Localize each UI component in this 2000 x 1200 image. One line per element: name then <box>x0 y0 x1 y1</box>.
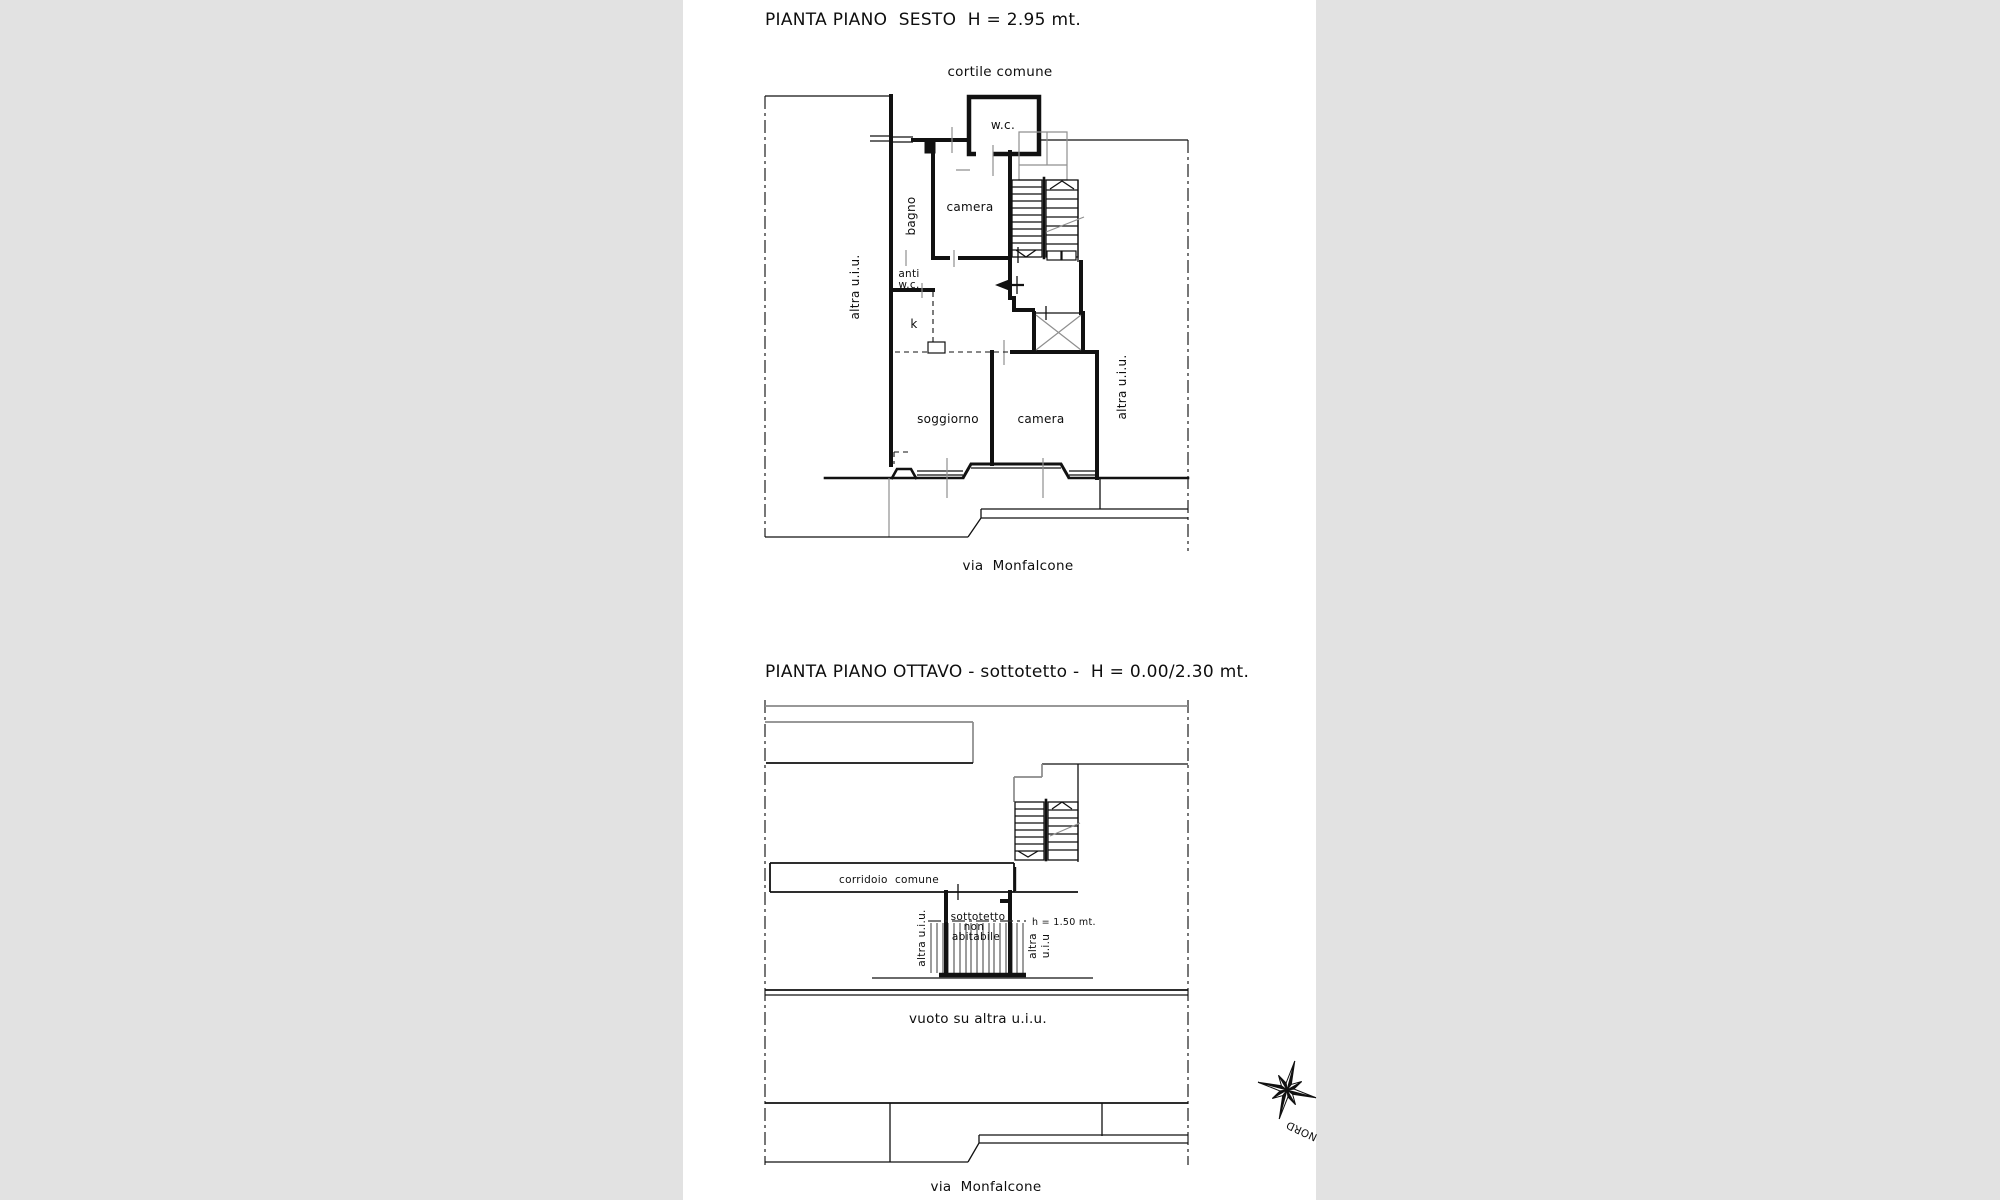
label-soggiorno: soggiorno <box>917 412 979 426</box>
label-sottotetto-3: abitabile <box>952 931 1000 943</box>
plan-sesto-title: PIANTA PIANO SESTO H = 2.95 mt. <box>765 10 1081 30</box>
floor-plan-document: PIANTA PIANO SESTO H = 2.95 mt. cortile … <box>0 0 2000 1200</box>
label-corridoio-comune: corridoio comune <box>839 874 939 886</box>
label-camera-bottom: camera <box>1017 412 1064 426</box>
label-height-note: h = 1.50 mt. <box>1032 917 1096 928</box>
label-wc: w.c. <box>991 118 1015 132</box>
label-anti-wc-2: w.c. <box>898 279 919 291</box>
label-via-monfalcone-1: via Monfalcone <box>963 558 1074 574</box>
label-cortile-comune: cortile comune <box>947 64 1052 80</box>
label-altra-uiu-right: altra u.i.u. <box>1115 354 1129 419</box>
label-via-monfalcone-2: via Monfalcone <box>931 1179 1042 1195</box>
label-altra-right-1: altra <box>1027 933 1039 959</box>
label-altra-right-2: u.i.u <box>1040 934 1052 958</box>
plan-ottavo-title: PIANTA PIANO OTTAVO - sottotetto - H = 0… <box>765 662 1249 682</box>
fixture-box <box>928 342 945 353</box>
viewer-canvas: PIANTA PIANO SESTO H = 2.95 mt. cortile … <box>0 0 2000 1200</box>
label-altra-uiu-left: altra u.i.u. <box>848 254 862 319</box>
label-vuoto: vuoto su altra u.i.u. <box>909 1011 1047 1027</box>
label-bagno: bagno <box>904 196 918 235</box>
label-camera-top: camera <box>946 200 993 214</box>
label-altra-uiu-left-2: altra u.i.u. <box>916 909 928 966</box>
label-k: k <box>910 317 917 331</box>
